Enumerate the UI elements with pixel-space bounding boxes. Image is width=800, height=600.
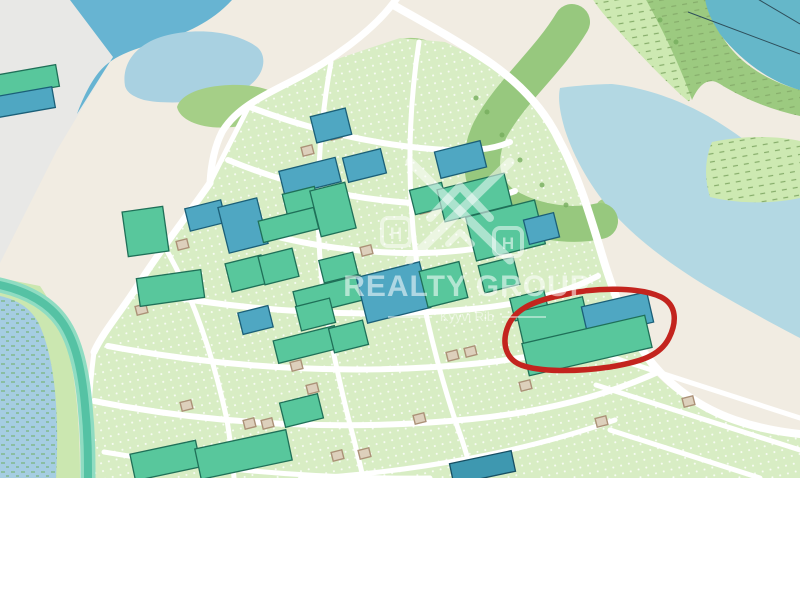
shed [180,400,193,411]
screenshot-stage: H H REALTY GROUP Kyyvi Rib [0,0,800,600]
shed [358,448,371,459]
shed [464,346,477,357]
shed [413,413,426,424]
shed [176,239,189,250]
shed [301,145,314,156]
shed [306,383,319,394]
shed [519,380,532,391]
wetland-island-hatch [706,137,800,202]
shed [261,418,274,429]
map-canvas[interactable] [0,0,800,478]
shed [446,350,459,361]
shed [360,245,373,256]
shed [290,360,303,371]
shed [595,416,608,427]
shed [682,396,695,407]
shed [331,450,344,461]
shed [243,418,256,429]
building [122,206,169,256]
